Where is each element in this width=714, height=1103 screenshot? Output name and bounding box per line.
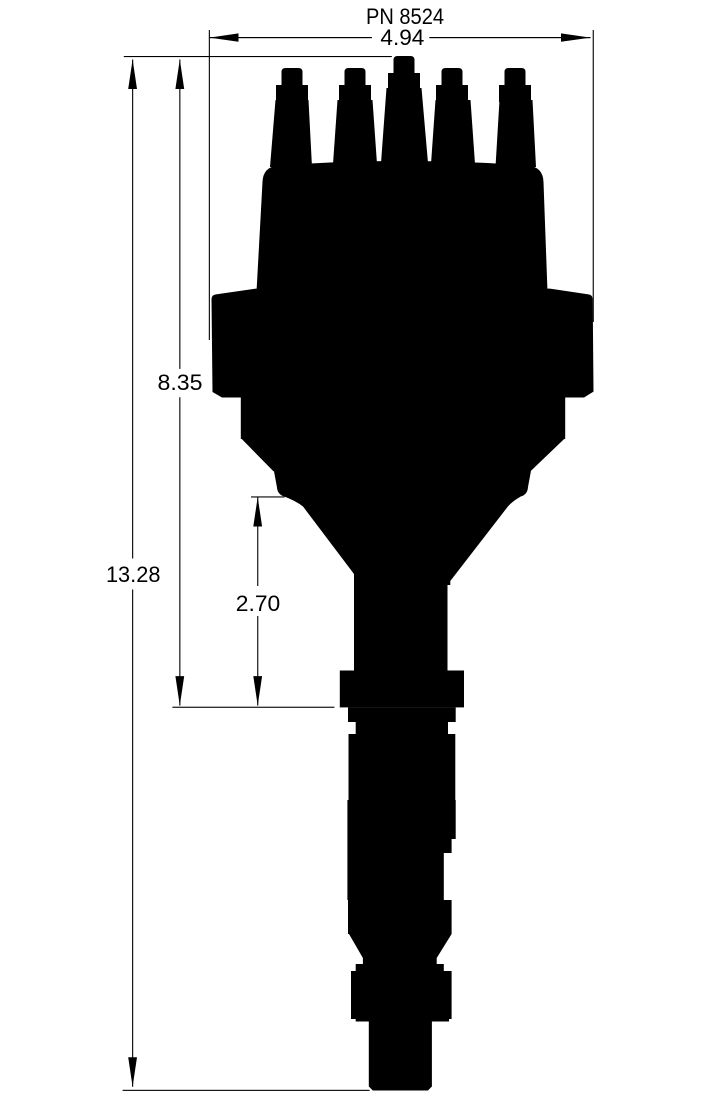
- svg-text:2.70: 2.70: [236, 591, 281, 616]
- svg-text:4.94: 4.94: [380, 25, 424, 50]
- svg-text:8.35: 8.35: [158, 370, 203, 395]
- svg-text:13.28: 13.28: [106, 562, 161, 587]
